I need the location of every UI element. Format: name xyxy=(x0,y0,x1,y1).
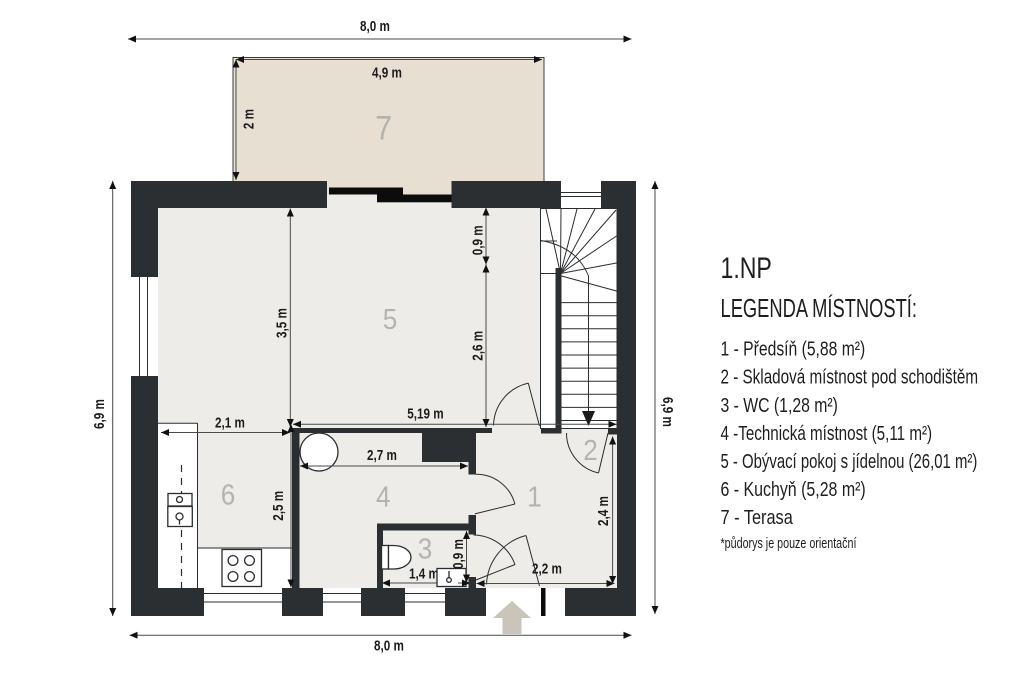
svg-text:5: 5 xyxy=(383,303,398,336)
svg-text:3 - WC (1,28 m²): 3 - WC (1,28 m²) xyxy=(721,394,838,416)
svg-text:1: 1 xyxy=(527,480,542,513)
svg-text:5,19 m: 5,19 m xyxy=(407,405,443,422)
svg-text:1.NP: 1.NP xyxy=(721,251,772,285)
svg-text:6,9 m: 6,9 m xyxy=(91,399,108,429)
svg-text:3,5 m: 3,5 m xyxy=(273,308,290,338)
svg-text:5 - Obývací pokoj s jídelnou (: 5 - Obývací pokoj s jídelnou (26,01 m²) xyxy=(721,450,978,473)
svg-text:8,0 m: 8,0 m xyxy=(360,18,390,35)
svg-text:2,7 m: 2,7 m xyxy=(367,447,397,464)
svg-text:0,9 m: 0,9 m xyxy=(449,539,466,569)
svg-text:2,4 m: 2,4 m xyxy=(595,496,612,526)
svg-text:2,1 m: 2,1 m xyxy=(215,414,245,431)
svg-text:2,5 m: 2,5 m xyxy=(270,491,287,521)
svg-text:2,2 m: 2,2 m xyxy=(532,560,562,577)
svg-text:7 - Terasa: 7 - Terasa xyxy=(721,506,794,529)
svg-text:0,9 m: 0,9 m xyxy=(469,225,486,255)
svg-text:6 - Kuchyň (5,28 m²): 6 - Kuchyň (5,28 m²) xyxy=(721,478,866,500)
svg-text:8,0 m: 8,0 m xyxy=(374,637,404,654)
svg-text:4 -Technická místnost (5,11 m²: 4 -Technická místnost (5,11 m²) xyxy=(721,422,933,445)
svg-text:2 m: 2 m xyxy=(240,109,257,129)
svg-text:4: 4 xyxy=(376,480,391,513)
svg-text:1,4 m: 1,4 m xyxy=(409,565,439,582)
svg-text:*půdorys je pouze orientační: *půdorys je pouze orientační xyxy=(721,534,857,551)
svg-text:LEGENDA MÍSTNOSTÍ:: LEGENDA MÍSTNOSTÍ: xyxy=(721,294,917,323)
svg-text:2: 2 xyxy=(583,434,598,467)
svg-text:2,6 m: 2,6 m xyxy=(469,331,486,361)
svg-text:1 - Předsíň (5,88 m²): 1 - Předsíň (5,88 m²) xyxy=(721,338,866,360)
svg-text:7: 7 xyxy=(375,109,392,147)
svg-text:4,9 m: 4,9 m xyxy=(372,64,402,81)
svg-text:3: 3 xyxy=(418,532,433,565)
svg-text:6: 6 xyxy=(221,478,236,511)
svg-text:2 - Skladová místnost pod scho: 2 - Skladová místnost pod schodištěm xyxy=(721,366,979,388)
svg-text:6,9 m: 6,9 m xyxy=(660,397,677,427)
